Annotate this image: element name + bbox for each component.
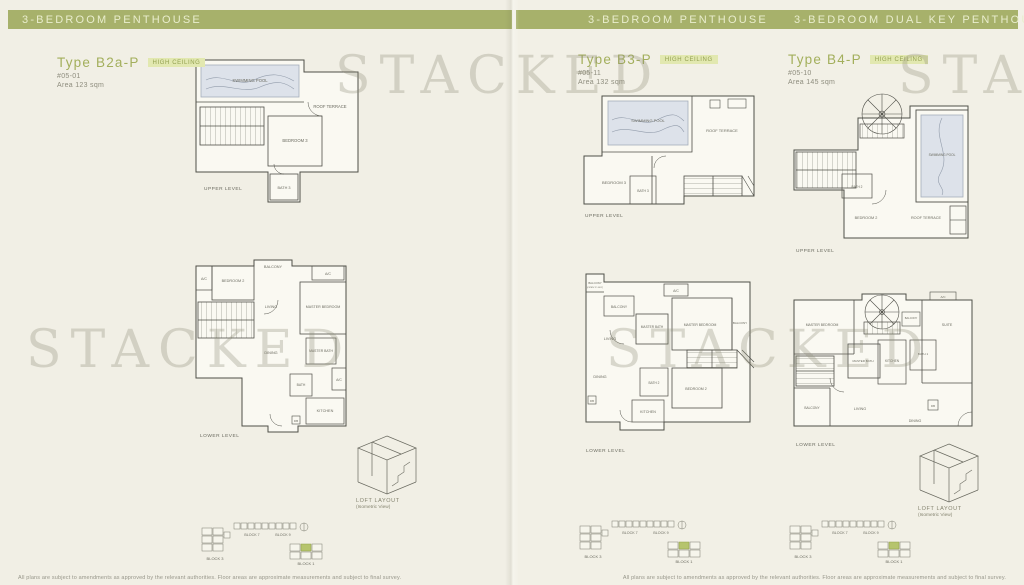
plan-caption-upper: UPPER LEVEL — [585, 213, 623, 219]
unit-number: #05-10 — [788, 70, 928, 77]
loft-title: LOFT LAYOUT — [356, 498, 400, 504]
room-label-swimming-pool: SWIMMING POOL — [929, 153, 956, 157]
room-label-db: DB — [294, 419, 298, 423]
loft-drawing — [920, 444, 978, 502]
brochure-spread: 3-BEDROOM PENTHOUSE Type B2a-P HIGH CEIL… — [0, 0, 1024, 585]
highlighted-unit — [679, 542, 689, 549]
room-label-bedroom2: BEDROOM 2 — [855, 216, 878, 220]
keyplan-b4: BLOCK 3 BLOCK 7 BLOCK 9 BLOCK 1 — [786, 518, 914, 564]
room-label-roof-terrace: ROOF TERRACE — [706, 128, 738, 133]
walls — [794, 94, 968, 238]
room-label-living: LIVING — [604, 337, 616, 341]
loft-subtitle: (Isometric View) — [918, 513, 962, 518]
site-blocks — [202, 523, 322, 559]
keyplan-b2a: BLOCK 3 BLOCK 7 BLOCK 9 BLOCK 1 — [198, 520, 326, 566]
room-label-ac: A/C — [325, 272, 331, 276]
floorplan-b2a-upper: SWIMMING POOL ROOF TERRACE BEDROOM 3 BAT… — [190, 50, 365, 210]
room-label-master-bath: MASTER BATH — [852, 359, 873, 363]
room-label-bath3: BATH 3 — [277, 186, 290, 190]
block-label-a: BLOCK 3 — [207, 556, 225, 561]
unit-area: Area 132 sqm — [578, 79, 718, 86]
walls — [584, 96, 754, 204]
room-label-bedroom3: BEDROOM 3 — [282, 138, 308, 143]
unit-type-label: Type B4-P — [788, 52, 862, 67]
room-label-suite: SUITE — [942, 323, 953, 327]
unit-info-b2a: Type B2a-P HIGH CEILING #05-01 Area 123 … — [57, 55, 205, 89]
room-label-kitchen: KITCHEN — [640, 410, 656, 414]
room-label-master-bedroom: MASTER BEDROOM — [306, 305, 341, 309]
floorplan-b3-lower: BALCONY (OPEN TO SKY) BALCONY A/C MASTER… — [572, 272, 762, 457]
unit-info-b4: Type B4-P HIGH CEILING #05-10 Area 145 s… — [788, 52, 928, 86]
room-label-bath: BATH — [297, 383, 306, 387]
block-label-b: BLOCK 7 — [832, 531, 847, 535]
walls — [196, 260, 346, 432]
block-label-d: BLOCK 1 — [298, 561, 316, 566]
disclaimer-left: All plans are subject to amendments as a… — [18, 575, 401, 581]
plan-caption-lower: LOWER LEVEL — [796, 442, 835, 448]
room-label-dining: DINING — [593, 375, 606, 379]
unit-title-row: Type B2a-P HIGH CEILING — [57, 55, 205, 70]
room-label-balcony: BALCONY — [804, 406, 820, 410]
room-label-balcony-sub: (OPEN TO SKY) — [587, 287, 603, 289]
highlighted-unit — [889, 542, 899, 549]
walls — [586, 274, 754, 430]
highlighted-unit — [301, 544, 311, 551]
room-label-bath1: BATH 1 — [918, 352, 929, 356]
room-label-roof-terrace: ROOF TERRACE — [911, 216, 942, 220]
room-label-dining: DINING — [909, 419, 922, 423]
room-label-bedroom3: BEDROOM 3 — [602, 180, 627, 185]
header-bar-left: 3-BEDROOM PENTHOUSE — [8, 10, 512, 29]
block-label-d: BLOCK 1 — [676, 559, 694, 564]
plan-caption-upper: UPPER LEVEL — [796, 248, 834, 254]
unit-info-b3: Type B3-P HIGH CEILING #05-11 Area 132 s… — [578, 52, 718, 86]
site-blocks — [580, 521, 700, 557]
swimming-pool-shape — [608, 101, 688, 145]
room-label-bath2: BATH 2 — [649, 381, 660, 385]
room-label-master-bedroom: MASTER BEDROOM — [684, 323, 717, 327]
room-label-balcony: BALCONY — [733, 321, 747, 325]
loft-label-right: LOFT LAYOUT (Isometric View) — [918, 506, 962, 518]
room-label-bath2: BATH 2 — [852, 185, 863, 189]
site-blocks — [790, 521, 910, 557]
room-label-bath3: BATH 3 — [637, 189, 649, 193]
block-label-a: BLOCK 3 — [795, 554, 813, 559]
room-label-bedroom2: BEDROOM 2 — [222, 279, 245, 283]
unit-badge: HIGH CEILING — [148, 58, 206, 67]
block-label-a: BLOCK 3 — [585, 554, 603, 559]
room-label-kitchen: KITCHEN — [885, 359, 900, 363]
plan-caption-lower: LOWER LEVEL — [200, 433, 239, 439]
page-gutter — [505, 0, 519, 585]
block-label-b: BLOCK 7 — [622, 531, 637, 535]
page-right: 3-BEDROOM PENTHOUSE 3-BEDROOM DUAL KEY P… — [512, 0, 1024, 585]
loft-label-left: LOFT LAYOUT (Isometric View) — [356, 498, 400, 510]
room-label-balcony: BALCONY — [905, 316, 918, 320]
block-label-d: BLOCK 1 — [886, 559, 904, 564]
unit-area: Area 145 sqm — [788, 79, 928, 86]
room-label-swimming-pool: SWIMMING POOL — [232, 78, 268, 83]
disclaimer-right: All plans are subject to amendments as a… — [623, 575, 1006, 581]
unit-title-row: Type B4-P HIGH CEILING — [788, 52, 928, 67]
room-label-living: LIVING — [854, 407, 866, 411]
room-label-db: DB — [590, 399, 594, 403]
page-title-right-1: 3-BEDROOM PENTHOUSE — [588, 14, 768, 26]
room-label-master-bath: MASTER BATH — [309, 349, 333, 353]
floorplan-b2a-lower: A/C BEDROOM 2 BALCONY A/C LIVING MASTER … — [186, 256, 368, 442]
page-left: 3-BEDROOM PENTHOUSE Type B2a-P HIGH CEIL… — [0, 0, 512, 585]
walls — [196, 60, 358, 202]
loft-subtitle: (Isometric View) — [356, 505, 400, 510]
room-label-balcony: BALCONY — [588, 281, 602, 285]
room-label-swimming-pool: SWIMMING POOL — [631, 118, 665, 123]
floorplan-b3-upper: SWIMMING POOL ROOF TERRACE BEDROOM 3 BAT… — [572, 88, 760, 220]
room-label-master-bedroom: MASTER BEDROOM — [806, 323, 839, 327]
room-label-ac: A/C — [940, 295, 946, 299]
room-label-ac: A/C — [336, 378, 342, 382]
plan-caption-lower: LOWER LEVEL — [586, 448, 625, 454]
room-label-ac: A/C — [673, 289, 679, 293]
loft-title: LOFT LAYOUT — [918, 506, 962, 512]
loft-isometric-left — [352, 430, 422, 496]
loft-drawing — [358, 436, 416, 494]
walls — [794, 292, 972, 426]
room-label-balcony: BALCONY — [611, 305, 628, 309]
room-label-ac: A/C — [201, 277, 207, 281]
block-label-b: BLOCK 7 — [244, 533, 259, 537]
block-label-c: BLOCK 9 — [863, 531, 878, 535]
unit-area: Area 123 sqm — [57, 82, 205, 89]
room-label-balcony: BALCONY — [264, 265, 283, 269]
floorplan-b4-upper: BATH 2 SWIMMING POOL BEDROOM 2 ROOF TERR… — [782, 88, 982, 256]
header-bar-right: 3-BEDROOM PENTHOUSE 3-BEDROOM DUAL KEY P… — [516, 10, 1018, 29]
block-label-c: BLOCK 9 — [275, 533, 290, 537]
floorplan-b4-lower: MASTER BEDROOM BALCONY A/C SUITE MASTER … — [782, 288, 978, 460]
unit-badge: HIGH CEILING — [870, 55, 928, 64]
room-label-bedroom2: BEDROOM 2 — [685, 387, 707, 391]
room-label-living: LIVING — [265, 305, 277, 309]
room-label-master-bath: MASTER BATH — [641, 325, 664, 329]
unit-title-row: Type B3-P HIGH CEILING — [578, 52, 718, 67]
room-label-db: DB — [931, 404, 935, 408]
room-label-dining: DINING — [264, 351, 277, 355]
page-title-left: 3-BEDROOM PENTHOUSE — [22, 14, 202, 26]
plan-caption-upper: UPPER LEVEL — [204, 186, 242, 192]
unit-number: #05-11 — [578, 70, 718, 77]
unit-type-label: Type B2a-P — [57, 55, 140, 70]
keyplan-b3: BLOCK 3 BLOCK 7 BLOCK 9 BLOCK 1 — [576, 518, 704, 564]
unit-badge: HIGH CEILING — [660, 55, 718, 64]
page-title-right-2: 3-BEDROOM DUAL KEY PENTHOUSE — [794, 14, 1024, 26]
unit-type-label: Type B3-P — [578, 52, 652, 67]
room-label-roof-terrace: ROOF TERRACE — [313, 104, 346, 109]
block-label-c: BLOCK 9 — [653, 531, 668, 535]
unit-number: #05-01 — [57, 73, 205, 80]
loft-isometric-right — [914, 438, 984, 504]
room-label-kitchen: KITCHEN — [317, 409, 334, 413]
